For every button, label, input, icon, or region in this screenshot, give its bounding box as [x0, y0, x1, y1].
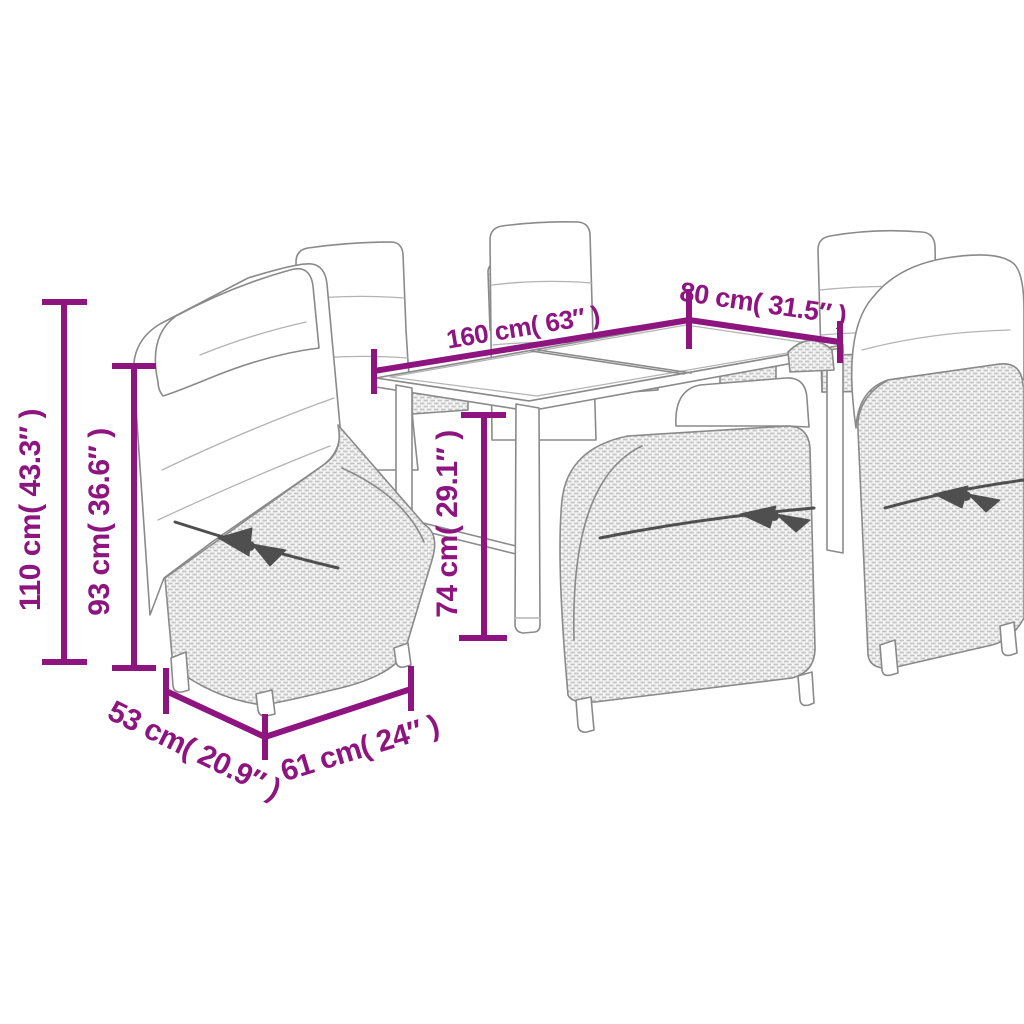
chair-foot — [880, 640, 898, 675]
dimension-label-chair-back-height: 93 cm( 36.6″ ) — [85, 428, 115, 615]
chair-foot — [394, 643, 411, 667]
table-leg — [827, 348, 843, 553]
chair-front-center — [560, 378, 815, 732]
chair-rattan-back — [858, 364, 1024, 668]
chair-rattan-back — [560, 426, 815, 702]
table-leg — [515, 404, 540, 633]
chair-foot — [798, 672, 814, 705]
furniture-illustration — [0, 0, 1024, 1024]
dimension-line-chair-total-height — [42, 302, 87, 662]
strap-knot — [245, 541, 255, 551]
chair-foot — [576, 697, 594, 732]
chair-foot — [1000, 622, 1017, 655]
dimension-line-table-height — [459, 415, 507, 638]
strap-knot — [769, 511, 779, 521]
dimension-diagram: 160 cm( 63″ ) 80 cm( 31.5″ ) 110 cm( 43.… — [0, 0, 1024, 1024]
line-art — [134, 222, 1024, 732]
dimension-label-chair-total-height: 110 cm( 43.3″ ) — [16, 409, 46, 611]
armrest-arc — [788, 340, 834, 372]
chair-cushion-top — [676, 378, 809, 427]
chair-foot — [256, 690, 275, 716]
chair-foot — [171, 652, 189, 692]
dimension-label-table-height: 74 cm( 29.1″ ) — [433, 430, 463, 617]
strap-knot — [961, 491, 971, 501]
